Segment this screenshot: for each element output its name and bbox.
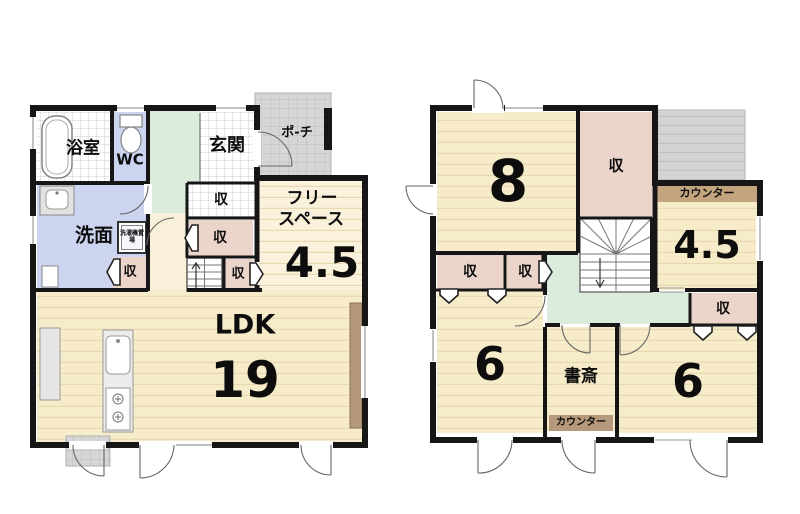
storage-label-3: 収: [231, 268, 244, 281]
counter-label-bottom: カウンター: [556, 418, 606, 428]
ldk-board: [350, 303, 362, 428]
cabinet-icon: [42, 266, 58, 287]
toilet-icon: [120, 115, 142, 153]
room-label-entrance: 玄関: [209, 137, 245, 155]
storage-label-2: 収: [213, 231, 227, 245]
room-size-45: 4.5: [673, 226, 740, 264]
room-label-study: 書斎: [564, 369, 598, 386]
room-label-ldk: LDK: [215, 312, 276, 339]
storage-label-5: 収: [608, 159, 623, 174]
kitchen-counter-icon: [103, 330, 133, 432]
washbasin-icon: [40, 186, 74, 215]
porch-wall-stub: [324, 108, 332, 150]
storage-label-7: 収: [518, 265, 532, 279]
floorplan-canvas: 浴室 WC 玄関 ポ-チ 洗面 洗濯機置場 収 収 収 収 フリー スペース 4…: [0, 0, 800, 514]
hall-floor: [148, 111, 200, 183]
room-label-porch: ポ-チ: [281, 127, 312, 140]
storage-label-1: 収: [214, 193, 228, 207]
room-size-6-left: 6: [474, 341, 506, 387]
room-size-ldk: 19: [210, 355, 280, 405]
room-label-bath: 浴室: [66, 141, 100, 158]
room-label-washroom: 洗面: [75, 227, 113, 246]
stairs-1f-icon: [187, 258, 222, 291]
room-label-free-space-1: フリー: [287, 191, 338, 208]
fridge-space-icon: [40, 328, 60, 400]
label-laundry-space: 洗濯機置場: [119, 230, 145, 244]
counter-label-top: カウンター: [680, 188, 735, 199]
roof-area: [655, 110, 745, 183]
hall-ldk-strip: [148, 213, 187, 291]
room-size-free-space: 4.5: [285, 242, 359, 284]
back-door-steps: [66, 436, 110, 466]
storage-label-4: 収: [123, 266, 136, 279]
stairs-2f-icon: [580, 218, 652, 292]
room-size-8: 8: [488, 152, 528, 210]
storage-label-8: 収: [716, 302, 730, 316]
room-label-wc: WC: [116, 153, 144, 168]
storage-label-6: 収: [463, 265, 477, 279]
room-size-6-right: 6: [672, 358, 704, 404]
room-label-free-space-2: スペース: [278, 212, 344, 229]
